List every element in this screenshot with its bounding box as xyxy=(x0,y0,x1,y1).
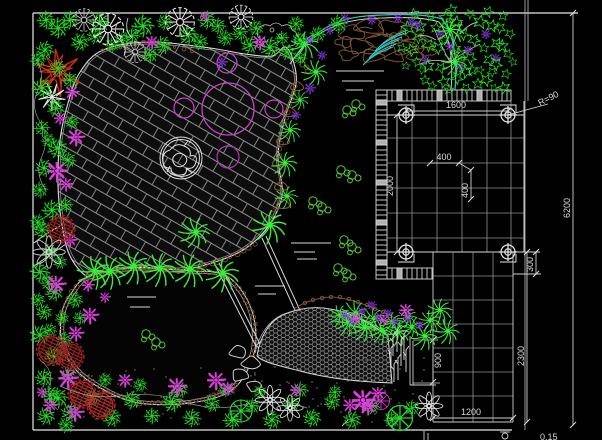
svg-text:2000: 2000 xyxy=(385,176,395,196)
svg-text:1600: 1600 xyxy=(446,100,466,110)
svg-text:0.15: 0.15 xyxy=(540,432,558,440)
svg-text:6200: 6200 xyxy=(562,198,572,218)
svg-text:2300: 2300 xyxy=(516,346,526,366)
svg-text:1200: 1200 xyxy=(461,407,481,417)
svg-text:400: 400 xyxy=(460,183,470,198)
svg-text:400: 400 xyxy=(436,152,451,162)
svg-text:900: 900 xyxy=(433,353,443,368)
svg-text:300: 300 xyxy=(525,257,535,272)
